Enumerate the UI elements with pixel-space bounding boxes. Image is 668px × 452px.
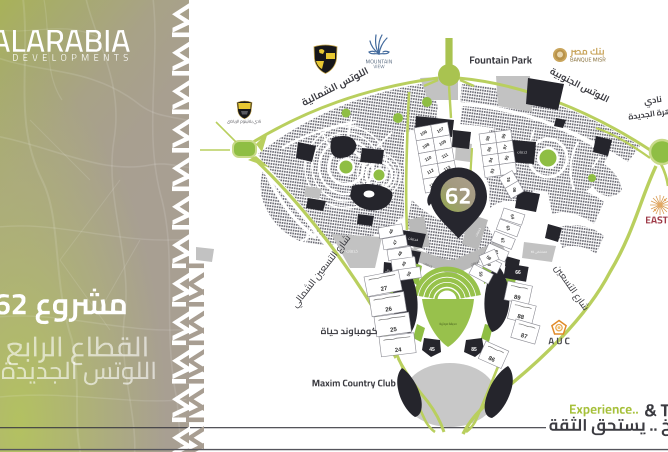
svg-text:91: 91 (506, 176, 511, 181)
svg-text:90: 90 (512, 187, 517, 192)
svg-text:59: 59 (478, 271, 483, 277)
svg-text:66: 66 (515, 270, 521, 276)
svg-text:85: 85 (471, 347, 477, 353)
svg-text:45: 45 (429, 347, 435, 353)
